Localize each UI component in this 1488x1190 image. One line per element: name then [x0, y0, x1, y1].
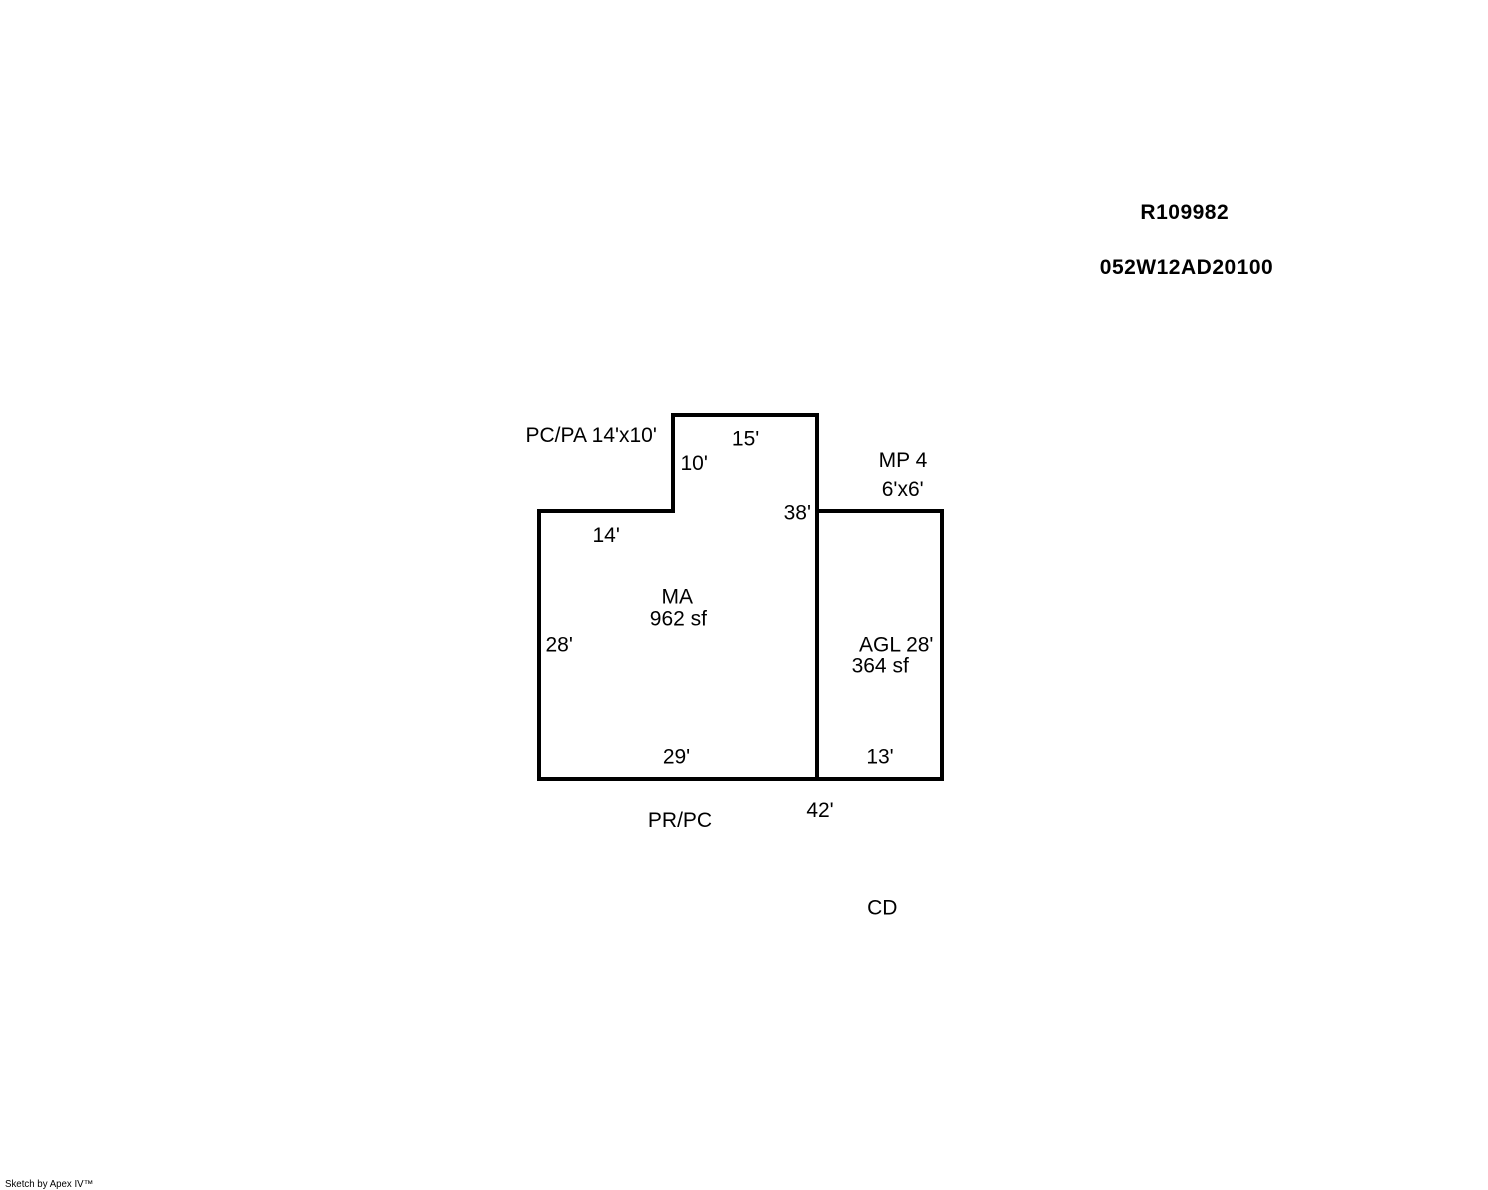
svg-text:28': 28': [546, 634, 573, 657]
svg-text:MA: MA: [662, 586, 694, 609]
svg-text:38': 38': [784, 502, 811, 525]
svg-text:MP 4: MP 4: [879, 449, 928, 472]
svg-text:R109982: R109982: [1140, 201, 1229, 224]
svg-text:364 sf: 364 sf: [852, 655, 909, 678]
svg-text:29': 29': [663, 746, 690, 769]
svg-text:14': 14': [593, 524, 620, 547]
svg-text:PR/PC: PR/PC: [648, 809, 712, 832]
svg-text:962 sf: 962 sf: [650, 607, 707, 630]
svg-text:10': 10': [681, 452, 708, 475]
svg-text:PC/PA 14'x10': PC/PA 14'x10': [526, 424, 657, 447]
svg-text:AGL 28': AGL 28': [859, 634, 933, 657]
svg-text:052W12AD20100: 052W12AD20100: [1100, 256, 1273, 279]
svg-text:CD: CD: [867, 897, 897, 920]
svg-text:42': 42': [806, 799, 833, 822]
svg-text:15': 15': [732, 428, 759, 451]
svg-text:Sketch by Apex IV™: Sketch by Apex IV™: [5, 1179, 93, 1190]
svg-text:13': 13': [866, 746, 893, 769]
svg-text:6'x6': 6'x6': [882, 478, 924, 501]
